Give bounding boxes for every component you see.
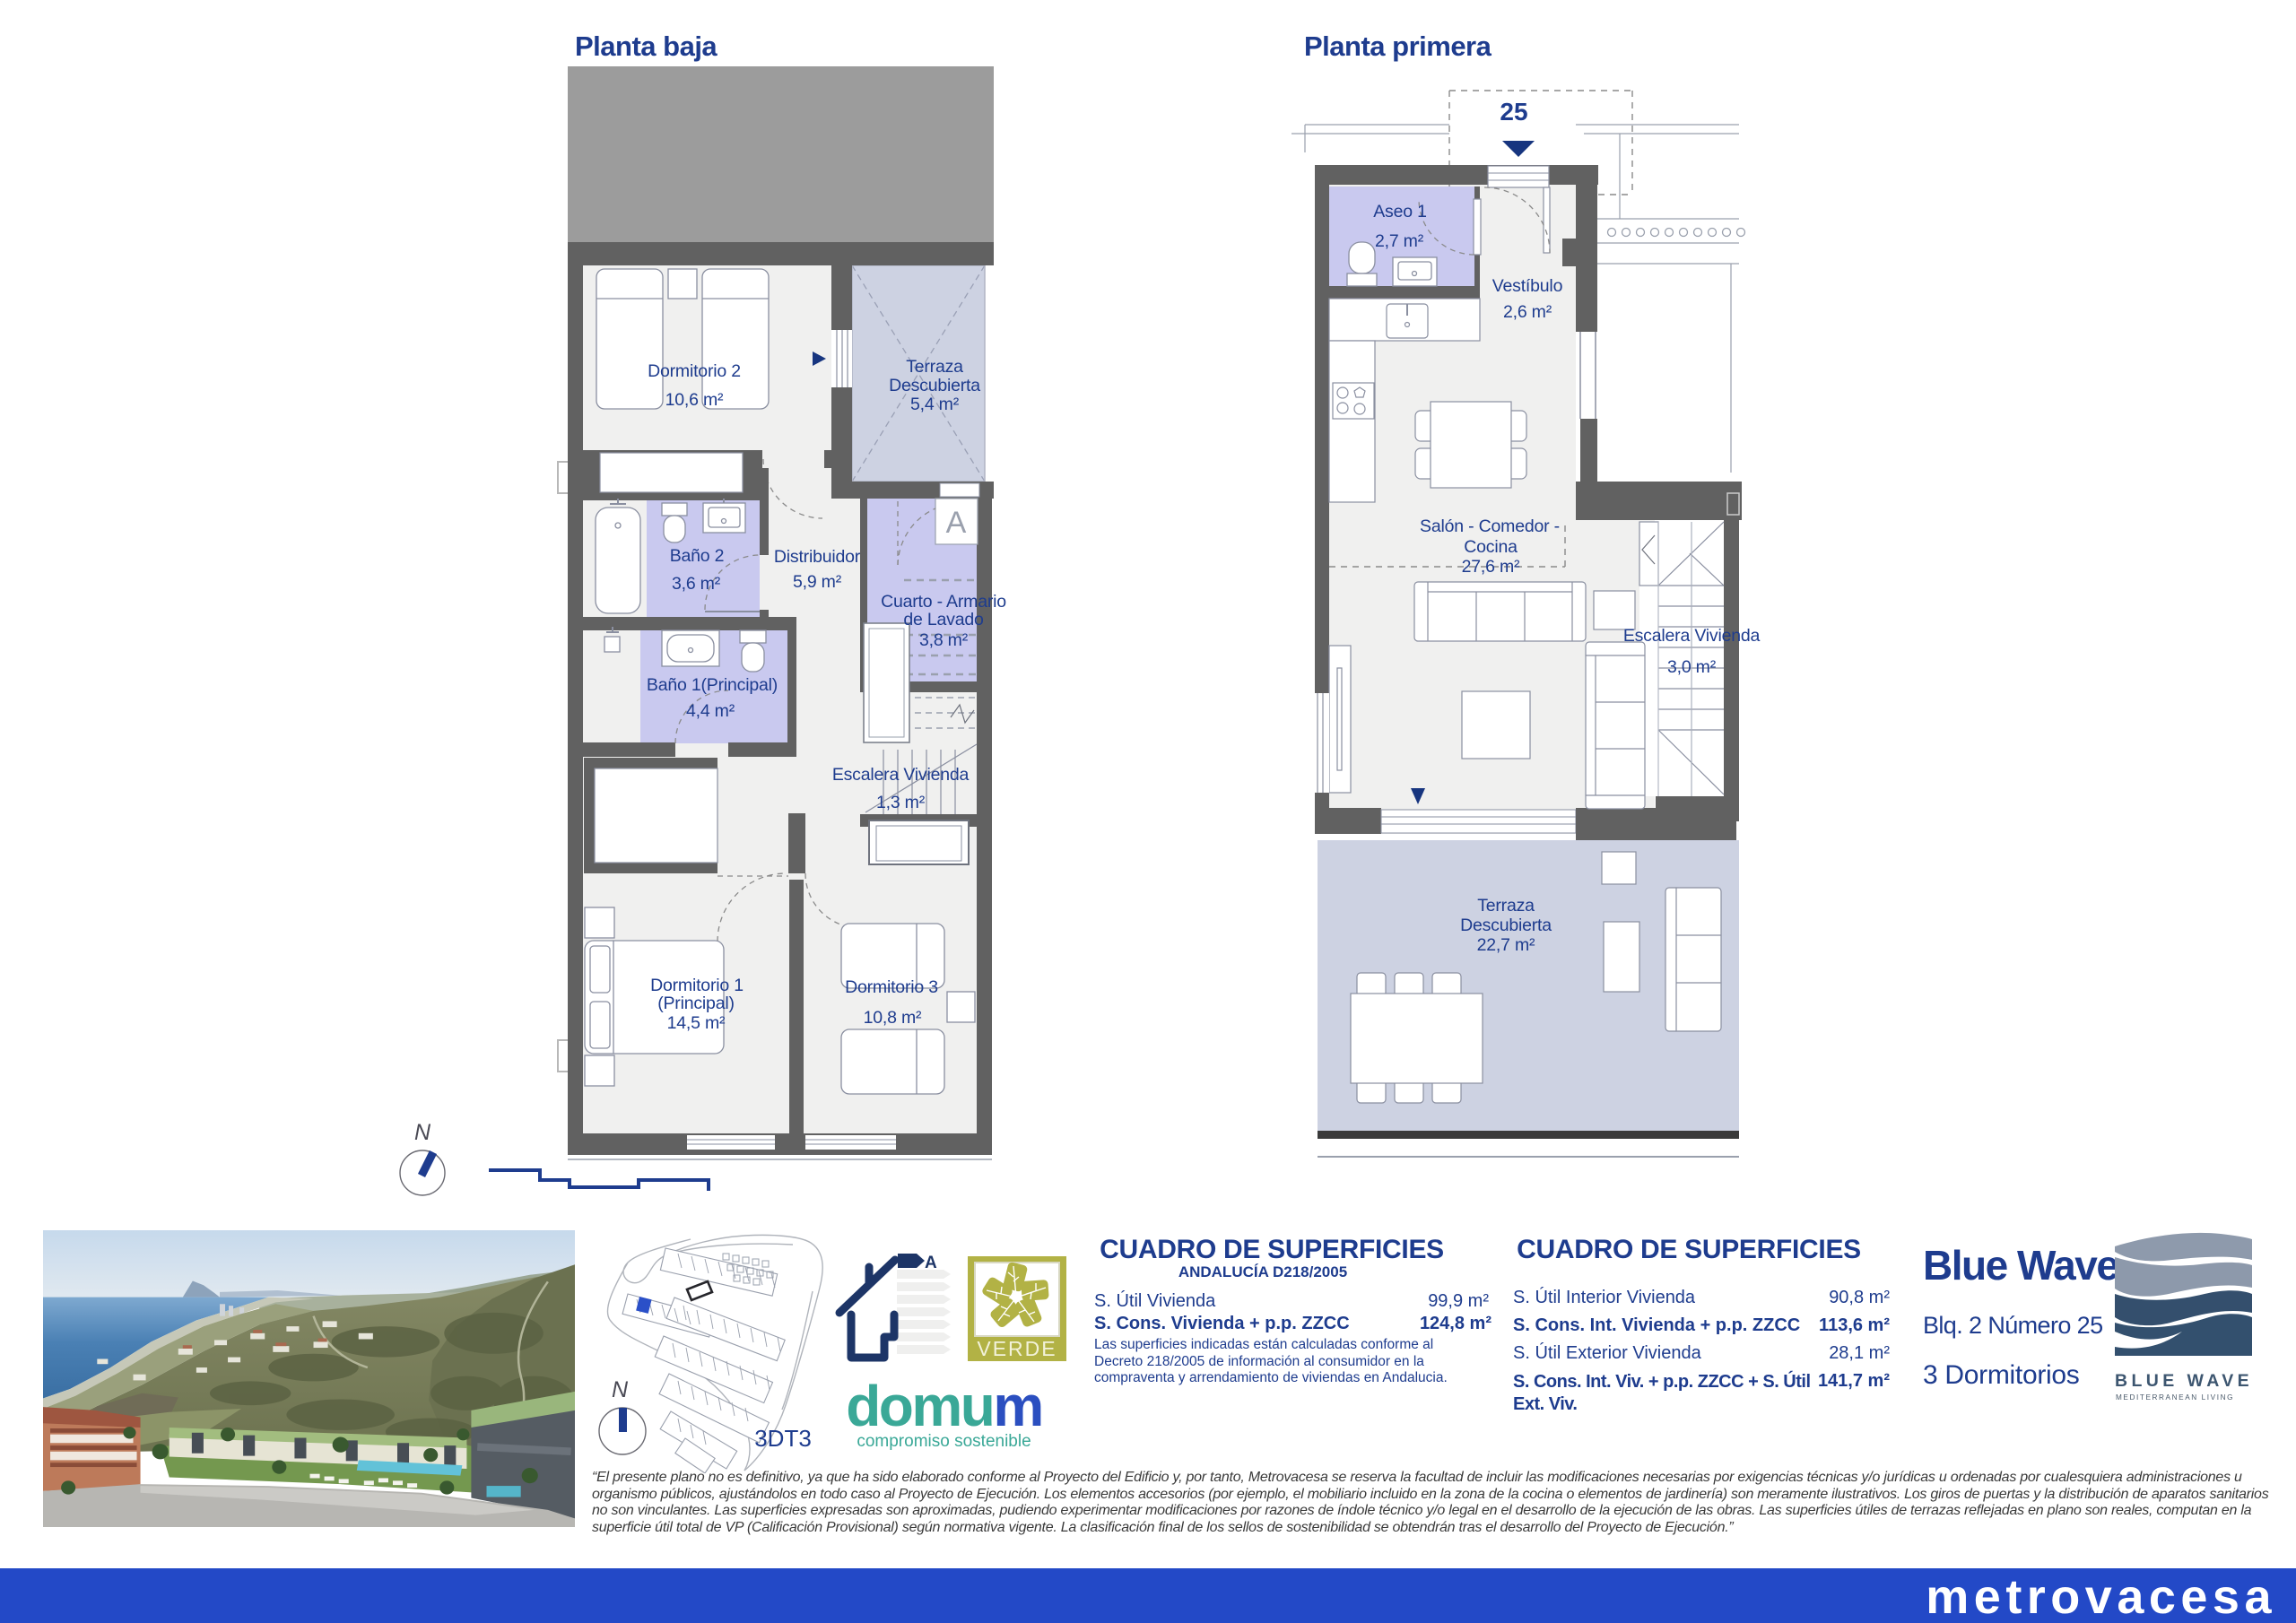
svg-text:BLUE WAVE: BLUE WAVE (2115, 1371, 2252, 1391)
svg-text:2,7 m²: 2,7 m² (1375, 231, 1424, 251)
svg-text:14,5 m²: 14,5 m² (667, 1013, 726, 1033)
svg-text:de Lavado: de Lavado (903, 610, 984, 629)
svg-text:Dormitorio 2: Dormitorio 2 (648, 361, 741, 381)
svg-text:Descubierta: Descubierta (1460, 916, 1552, 935)
svg-text:Distribuidor: Distribuidor (774, 547, 861, 567)
svg-text:10,8 m²: 10,8 m² (864, 1008, 922, 1028)
svg-text:MEDITERRANEAN LIVING: MEDITERRANEAN LIVING (2116, 1393, 2234, 1402)
svg-text:3,0 m²: 3,0 m² (1667, 657, 1717, 677)
svg-text:4,4 m²: 4,4 m² (686, 701, 735, 721)
svg-text:Escalera Vivienda: Escalera Vivienda (832, 765, 970, 785)
svg-text:3,6 m²: 3,6 m² (672, 574, 721, 594)
svg-text:Dormitorio 3: Dormitorio 3 (845, 977, 938, 997)
svg-text:22,7 m²: 22,7 m² (1477, 935, 1535, 955)
svg-text:Escalera Vivienda: Escalera Vivienda (1623, 626, 1761, 646)
svg-text:N: N (414, 1120, 431, 1145)
svg-text:10,6 m²: 10,6 m² (665, 390, 724, 410)
svg-text:1,3 m²: 1,3 m² (876, 793, 926, 812)
svg-text:A: A (946, 506, 967, 540)
svg-text:5,4 m²: 5,4 m² (910, 395, 960, 414)
svg-text:Cocina: Cocina (1464, 537, 1518, 557)
svg-text:Terraza: Terraza (1477, 896, 1535, 916)
svg-text:Baño 1(Principal): Baño 1(Principal) (647, 675, 778, 695)
svg-text:Dormitorio 1: Dormitorio 1 (650, 976, 744, 995)
svg-text:VERDE: VERDE (977, 1337, 1057, 1360)
svg-text:Vestíbulo: Vestíbulo (1492, 276, 1563, 296)
svg-text:5,9 m²: 5,9 m² (793, 572, 842, 592)
svg-text:Salón - Comedor -: Salón - Comedor - (1420, 516, 1560, 536)
svg-text:Cuarto - Armario: Cuarto - Armario (881, 592, 1006, 612)
svg-text:N: N (612, 1377, 629, 1402)
svg-text:25: 25 (1500, 98, 1527, 126)
svg-text:Aseo 1: Aseo 1 (1373, 202, 1427, 221)
svg-text:Baño 2: Baño 2 (670, 546, 725, 566)
svg-text:3,8 m²: 3,8 m² (919, 630, 969, 650)
svg-text:(Principal): (Principal) (657, 994, 735, 1013)
svg-text:27,6 m²: 27,6 m² (1462, 557, 1520, 577)
svg-text:Terraza: Terraza (906, 357, 963, 377)
svg-text:A: A (925, 1254, 937, 1272)
svg-text:Descubierta: Descubierta (889, 376, 980, 395)
svg-text:3DT3: 3DT3 (754, 1425, 812, 1452)
svg-text:2,6 m²: 2,6 m² (1503, 302, 1552, 322)
